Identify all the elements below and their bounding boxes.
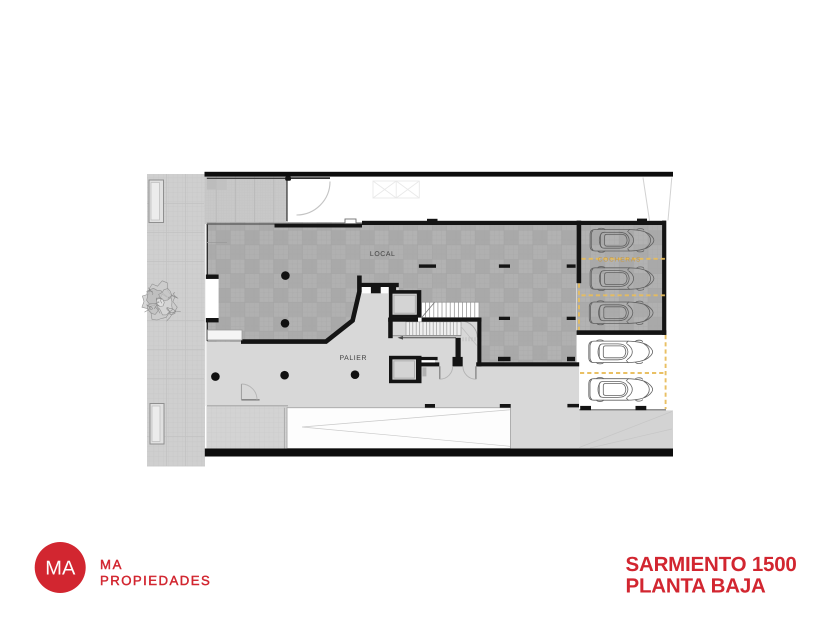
svg-text:PALIER: PALIER <box>339 355 367 362</box>
svg-text:PLANTA BAJA: PLANTA BAJA <box>626 574 767 597</box>
svg-text:SARMIENTO 1500: SARMIENTO 1500 <box>626 553 797 576</box>
svg-text:MA: MA <box>45 557 76 579</box>
svg-text:MA: MA <box>100 557 123 572</box>
svg-text:PROPIEDADES: PROPIEDADES <box>100 573 211 588</box>
svg-text:COCHERAS: COCHERAS <box>598 257 641 264</box>
svg-text:LOCAL: LOCAL <box>370 251 396 258</box>
